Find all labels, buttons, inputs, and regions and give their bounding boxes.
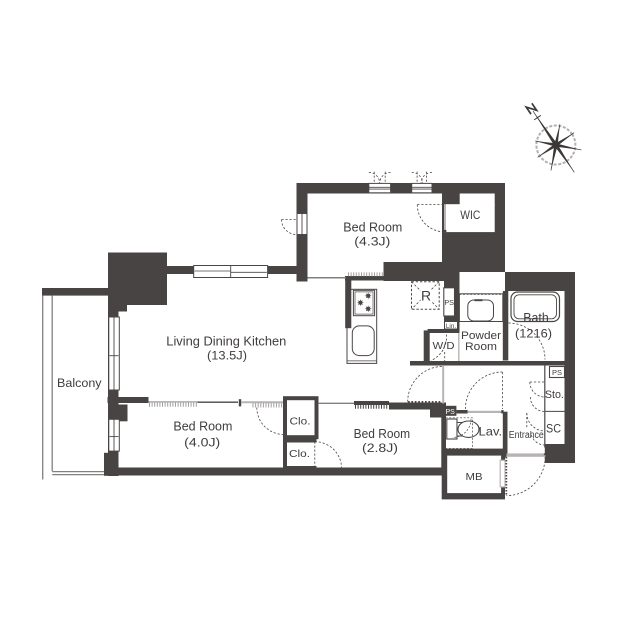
svg-text:PS: PS [446,409,456,416]
svg-text:Living Dining Kitchen: Living Dining Kitchen [166,333,286,348]
svg-text:Sto.: Sto. [545,389,564,401]
svg-text:Room: Room [465,341,497,353]
svg-text:(13.5J): (13.5J) [207,348,247,362]
svg-text:MB: MB [466,471,483,483]
svg-text:W/D: W/D [433,341,455,352]
svg-text:Balcony: Balcony [57,376,102,390]
svg-text:Bed Room: Bed Room [343,221,402,235]
svg-text:Bath: Bath [523,311,549,325]
svg-text:Clo.: Clo. [290,417,311,428]
svg-text:SC: SC [546,423,561,435]
svg-text:PS: PS [552,368,562,377]
svg-text:Clo.: Clo. [289,449,310,460]
svg-text:Bed Room: Bed Room [354,427,411,441]
svg-text:(4.3J): (4.3J) [354,235,390,249]
svg-text:WIC: WIC [460,208,480,222]
svg-text:Lin.: Lin. [446,323,456,330]
svg-text:R: R [421,287,431,303]
svg-text:Lav.: Lav. [479,424,503,438]
svg-text:Entrance: Entrance [509,430,544,441]
svg-text:(2.8J): (2.8J) [362,441,398,455]
svg-text:Bed Room: Bed Room [173,420,232,434]
svg-text:(1216): (1216) [515,326,552,340]
svg-text:PS: PS [444,298,454,307]
svg-text:(4.0J): (4.0J) [184,435,220,449]
